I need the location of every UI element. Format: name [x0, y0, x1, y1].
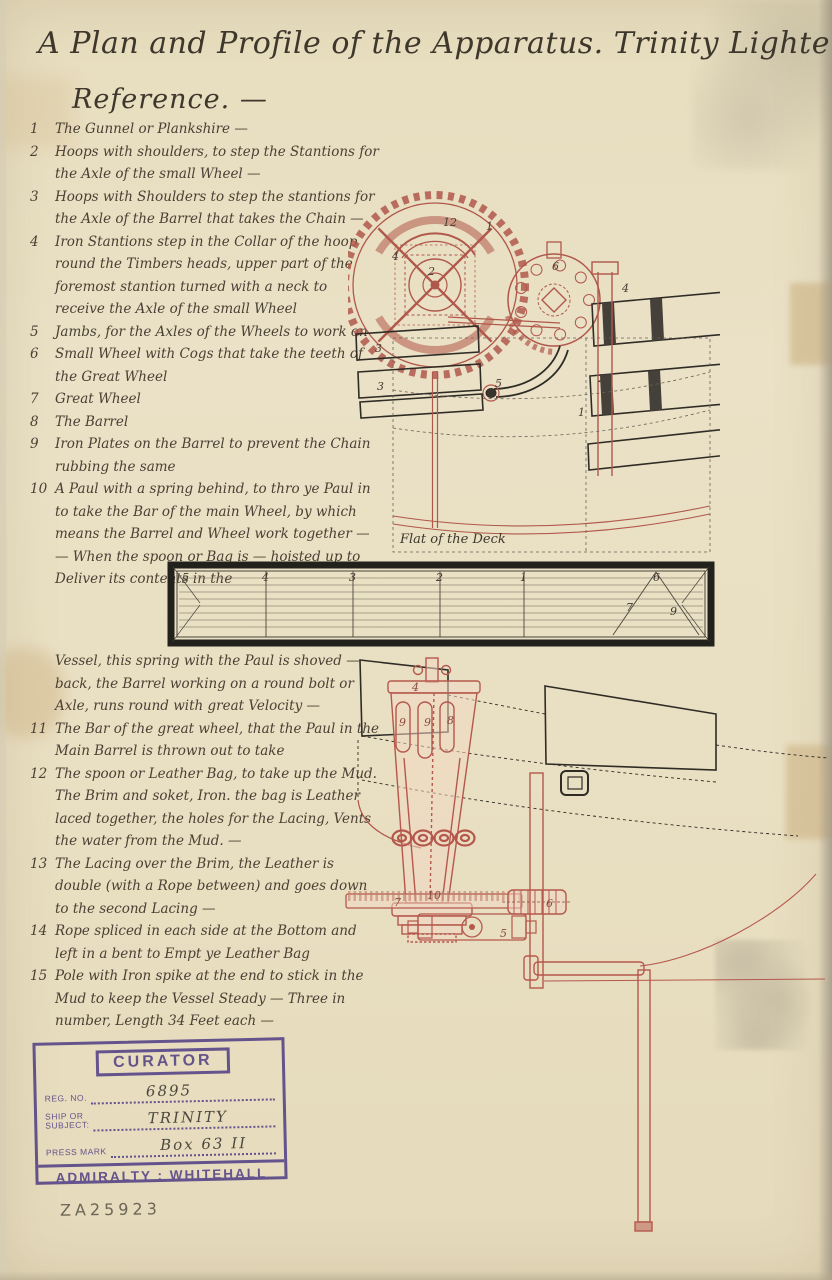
- item-text: The Barrel: [55, 414, 128, 430]
- svg-text:5: 5: [182, 571, 189, 584]
- curator-stamp-title: CURATOR: [96, 1047, 231, 1076]
- svg-text:10: 10: [427, 889, 441, 902]
- item-number: 10: [30, 478, 47, 501]
- svg-text:9: 9: [670, 605, 677, 618]
- item-number: 6: [30, 343, 39, 366]
- item-10-continuation: Vessel, this spring with the Paul is sho…: [28, 650, 382, 718]
- svg-text:8: 8: [447, 714, 454, 727]
- svg-text:2: 2: [427, 265, 435, 278]
- item-text: Great Wheel: [55, 391, 141, 407]
- item-text: Hoops with Shoulders to step the stantio…: [55, 189, 375, 228]
- svg-text:4: 4: [261, 571, 269, 584]
- svg-text:3: 3: [375, 342, 382, 355]
- svg-text:5: 5: [495, 377, 502, 390]
- svg-text:1: 1: [486, 220, 493, 233]
- curator-stamp: CURATOR Reg. No. 6895 Ship or Subject: T…: [32, 1037, 287, 1185]
- item-number: 13: [30, 853, 47, 876]
- profile-view-drawing: 4 9 9 8 10 7 6 5: [338, 650, 832, 1242]
- svg-text:12: 12: [443, 216, 457, 229]
- svg-text:3: 3: [377, 380, 384, 393]
- svg-text:5: 5: [500, 927, 507, 940]
- item-number: 7: [30, 388, 39, 411]
- item-number: 14: [30, 920, 47, 943]
- ship-subject-label: Ship or Subject:: [45, 1112, 89, 1133]
- item-text: The Gunnel or Plankshire —: [55, 121, 248, 137]
- svg-text:4: 4: [621, 282, 629, 295]
- reference-item: 8The Barrel: [28, 411, 380, 434]
- press-mark-value: Box 63 II: [160, 1134, 247, 1154]
- dotted-leader: TRINITY: [93, 1105, 275, 1131]
- svg-text:7: 7: [394, 896, 401, 909]
- scan-edge-left: [0, 0, 6, 1280]
- reference-item: 13The Lacing over the Brim, the Leather …: [28, 853, 382, 921]
- plan-strip-drawing: 5 4 3 2 1 6 7 9: [166, 558, 716, 650]
- reference-list-lower: Vessel, this spring with the Paul is sho…: [28, 650, 382, 1033]
- svg-text:9: 9: [399, 716, 406, 729]
- tape-stain-right-upper: [790, 283, 832, 365]
- svg-text:1: 1: [520, 571, 527, 584]
- svg-text:3: 3: [349, 571, 356, 584]
- item-number: 8: [30, 411, 39, 434]
- svg-text:4: 4: [411, 681, 419, 694]
- item-number: 9: [30, 433, 39, 456]
- reg-no-label: Reg. No.: [45, 1094, 88, 1106]
- svg-text:2: 2: [602, 308, 610, 321]
- item-number: 1: [30, 118, 39, 141]
- document-title: A Plan and Profile of the Apparatus. Tri…: [38, 26, 818, 61]
- svg-text:9: 9: [424, 716, 431, 729]
- reference-heading: Reference. —: [72, 84, 268, 115]
- item-text: Small Wheel with Cogs that take the teet…: [55, 346, 363, 385]
- scanned-document-page: A Plan and Profile of the Apparatus. Tri…: [0, 0, 832, 1280]
- plan-view-drawing: 12 1 4 2 6 4 2 2 1 3 3 5 Flat of the Dec…: [348, 176, 720, 562]
- item-text: Pole with Iron spike at the end to stick…: [55, 968, 364, 1029]
- item-text: Hoops with shoulders, to step the Stanti…: [55, 144, 379, 183]
- svg-text:2: 2: [597, 372, 605, 385]
- reference-item: 9Iron Plates on the Barrel to prevent th…: [28, 433, 380, 478]
- scan-edge-bottom: [0, 1271, 832, 1280]
- crank-and-pole: [524, 773, 825, 1231]
- reg-no-value: 6895: [146, 1081, 193, 1100]
- reference-item: 11The Bar of the great wheel, that the P…: [28, 718, 382, 763]
- reference-item: 14Rope spliced in each side at the Botto…: [28, 920, 382, 965]
- reference-item: 1The Gunnel or Plankshire —: [28, 118, 380, 141]
- item-number: 11: [30, 718, 47, 741]
- reference-item: 3Hoops with Shoulders to step the stanti…: [28, 186, 380, 231]
- reference-item: 6Small Wheel with Cogs that take the tee…: [28, 343, 380, 388]
- item-number: 12: [30, 763, 47, 786]
- svg-text:6: 6: [546, 897, 553, 910]
- stamp-footer: ADMIRALTY : WHITEHALL: [38, 1159, 284, 1188]
- reference-item: 5Jambs, for the Axles of the Wheels to w…: [28, 321, 380, 344]
- reference-list-upper: 1The Gunnel or Plankshire — 2Hoops with …: [28, 118, 380, 591]
- svg-text:6: 6: [552, 260, 559, 273]
- svg-text:6: 6: [653, 571, 660, 584]
- plank-lines: [179, 578, 703, 627]
- stamp-ship-row: Ship or Subject: TRINITY: [45, 1103, 275, 1132]
- dotted-leader: 6895: [91, 1078, 275, 1104]
- item-number: 5: [30, 321, 39, 344]
- svg-text:2: 2: [435, 571, 443, 584]
- reference-item: 7Great Wheel: [28, 388, 380, 411]
- svg-text:1: 1: [578, 406, 585, 419]
- reference-item: 2Hoops with shoulders, to step the Stant…: [28, 141, 380, 186]
- item-number: 2: [30, 141, 39, 164]
- item-number: 4: [30, 231, 39, 254]
- item-number: 15: [30, 965, 47, 988]
- deck-label: Flat of the Deck: [399, 532, 506, 547]
- catalog-number: ZA25923: [60, 1199, 161, 1219]
- item-text: Iron Stantions step in the Collar of the…: [55, 234, 357, 318]
- svg-text:7: 7: [626, 601, 633, 614]
- item-text: Iron Plates on the Barrel to prevent the…: [55, 436, 370, 475]
- press-mark-label: Press Mark: [46, 1147, 107, 1159]
- item-text: Jambs, for the Axles of the Wheels to wo…: [55, 324, 368, 340]
- stamp-reg-row: Reg. No. 6895: [44, 1076, 274, 1105]
- stamp-pressmark-row: Press Mark Box 63 II: [46, 1130, 276, 1159]
- right-planks: [588, 262, 720, 476]
- svg-text:4: 4: [391, 250, 399, 263]
- reference-item: 12The spoon or Leather Bag, to take up t…: [28, 763, 382, 853]
- ship-subject-value: TRINITY: [148, 1107, 229, 1127]
- item-text: The spoon or Leather Bag, to take up the…: [55, 766, 377, 850]
- reference-item: 15Pole with Iron spike at the end to sti…: [28, 965, 382, 1033]
- reference-item: 4Iron Stantions step in the Collar of th…: [28, 231, 380, 321]
- item-text: The Bar of the great wheel, that the Pau…: [55, 721, 379, 760]
- item-text: The Lacing over the Brim, the Leather is…: [55, 856, 367, 917]
- item-number: 3: [30, 186, 39, 209]
- item-text: Rope spliced in each side at the Bottom …: [55, 923, 357, 962]
- dotted-leader: Box 63 II: [110, 1132, 276, 1158]
- curved-arm: [483, 346, 568, 401]
